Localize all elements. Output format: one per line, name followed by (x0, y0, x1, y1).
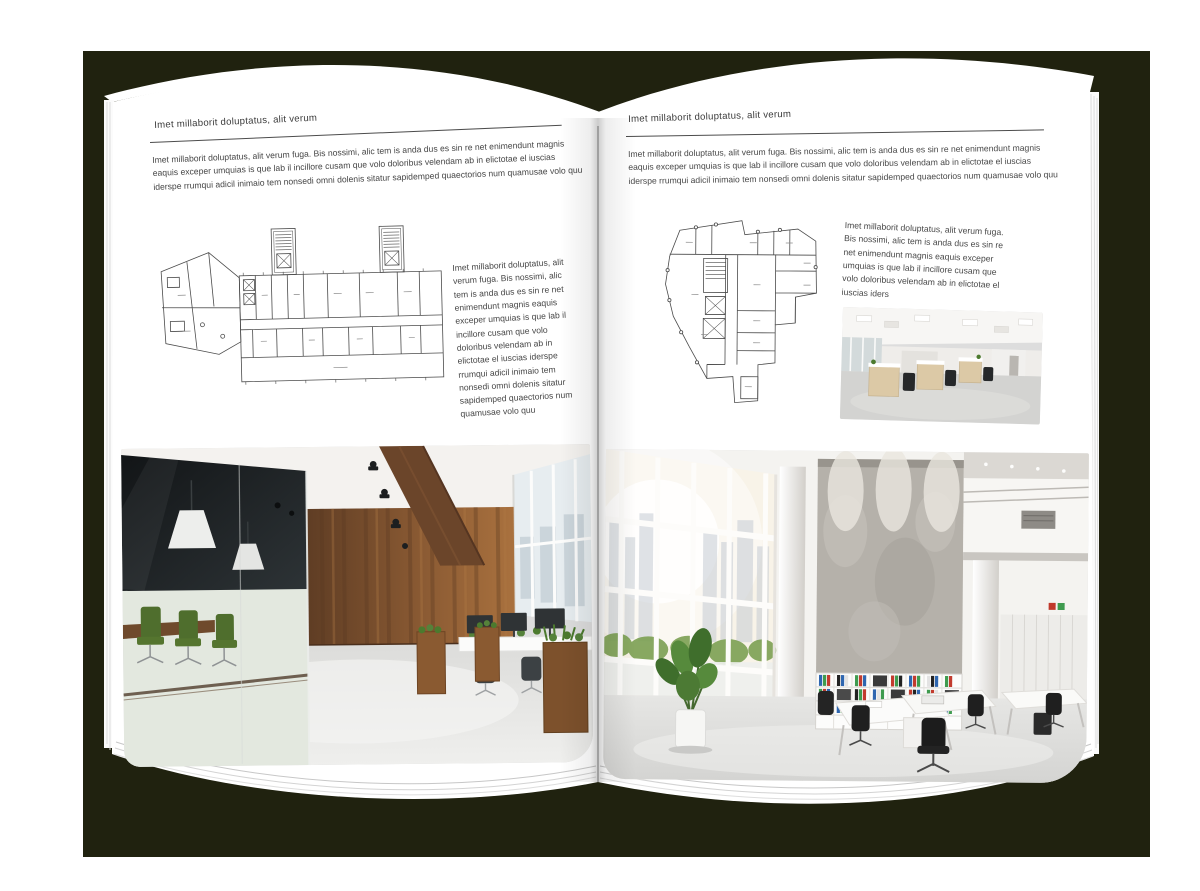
right-side-paragraph: Imet millaborit doluptatus, alit verum f… (841, 219, 1012, 306)
stair-tower-left (271, 228, 296, 275)
mezzanine (963, 452, 1089, 561)
angled-wing (161, 252, 241, 356)
interior-walls (669, 225, 817, 399)
irregular-outline (665, 220, 818, 403)
floor-plan-right (645, 214, 830, 419)
glass-meeting-room (121, 453, 308, 601)
photo-open-office-small (840, 307, 1043, 425)
left-side-paragraph: Imet millaborit doluptatus, alit verum f… (452, 256, 575, 422)
city-windows (513, 454, 592, 623)
photo-atrium-office (603, 449, 1089, 783)
stair-tower-right (379, 226, 404, 273)
floor-plan-left (150, 219, 452, 412)
photo-loft-office (121, 444, 593, 767)
core-stairs (703, 258, 728, 338)
right-intro-paragraph: Imet millaborit doluptatus, alit verum f… (628, 141, 1059, 188)
magazine-mockup-scene: Imet millaborit doluptatus, alit verum I… (0, 0, 1200, 891)
concrete-wall (816, 449, 964, 674)
